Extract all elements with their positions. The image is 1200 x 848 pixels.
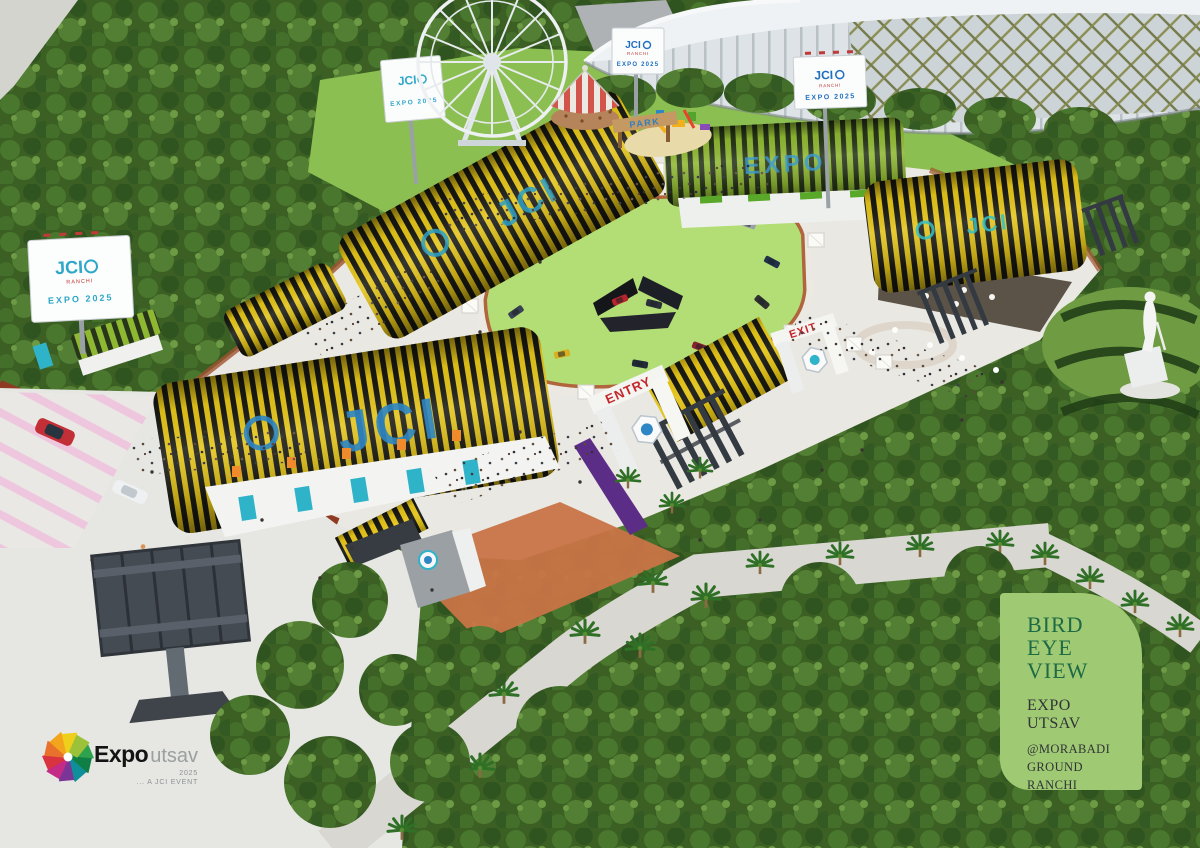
expo-utsav-pinwheel-icon	[38, 726, 98, 788]
logo-tagline: ... A JCI EVENT	[137, 778, 198, 787]
info-card-venue: @MORABADI GROUND RANCHI	[1027, 740, 1128, 794]
billboard-park-sub: RANCHI	[627, 51, 649, 56]
billboard-ferris-jci: JCI	[397, 73, 417, 89]
billboard-left-jci: JCI	[55, 257, 84, 278]
info-card-title-line3: VIEW	[1027, 659, 1128, 682]
logo-year: 2025	[179, 769, 198, 778]
billboard-stadium-sub: RANCHI	[819, 83, 841, 89]
billboard-park-jci: JCI	[625, 40, 641, 51]
billboard-park-expo: EXPO 2025	[617, 62, 660, 68]
event-logo-text: Expoutsav 2025 ... A JCI EVENT	[94, 741, 198, 787]
bird-eye-view-render: JCI EXPO JCI JCI	[0, 0, 1200, 848]
event-logo: Expoutsav 2025 ... A JCI EVENT	[38, 726, 198, 788]
info-card-venue-line3: RANCHI	[1027, 776, 1128, 794]
logo-brand-light: utsav	[150, 745, 198, 767]
food-court-jci-logo: JCI	[965, 209, 1011, 239]
info-card-event-name: EXPO UTSAV	[1027, 697, 1128, 733]
info-card-venue-line2: GROUND	[1027, 758, 1128, 776]
info-card: BIRD EYE VIEW EXPO UTSAV @MORABADI GROUN…	[1000, 593, 1142, 790]
billboard-stadium-jci: JCI	[814, 68, 833, 83]
info-card-title-line1: BIRD	[1027, 613, 1128, 636]
logo-brand-bold: Expo	[94, 741, 148, 767]
info-card-title-line2: EYE	[1027, 636, 1128, 659]
info-card-title: BIRD EYE VIEW	[1027, 613, 1128, 682]
info-card-venue-line1: @MORABADI	[1027, 740, 1128, 758]
